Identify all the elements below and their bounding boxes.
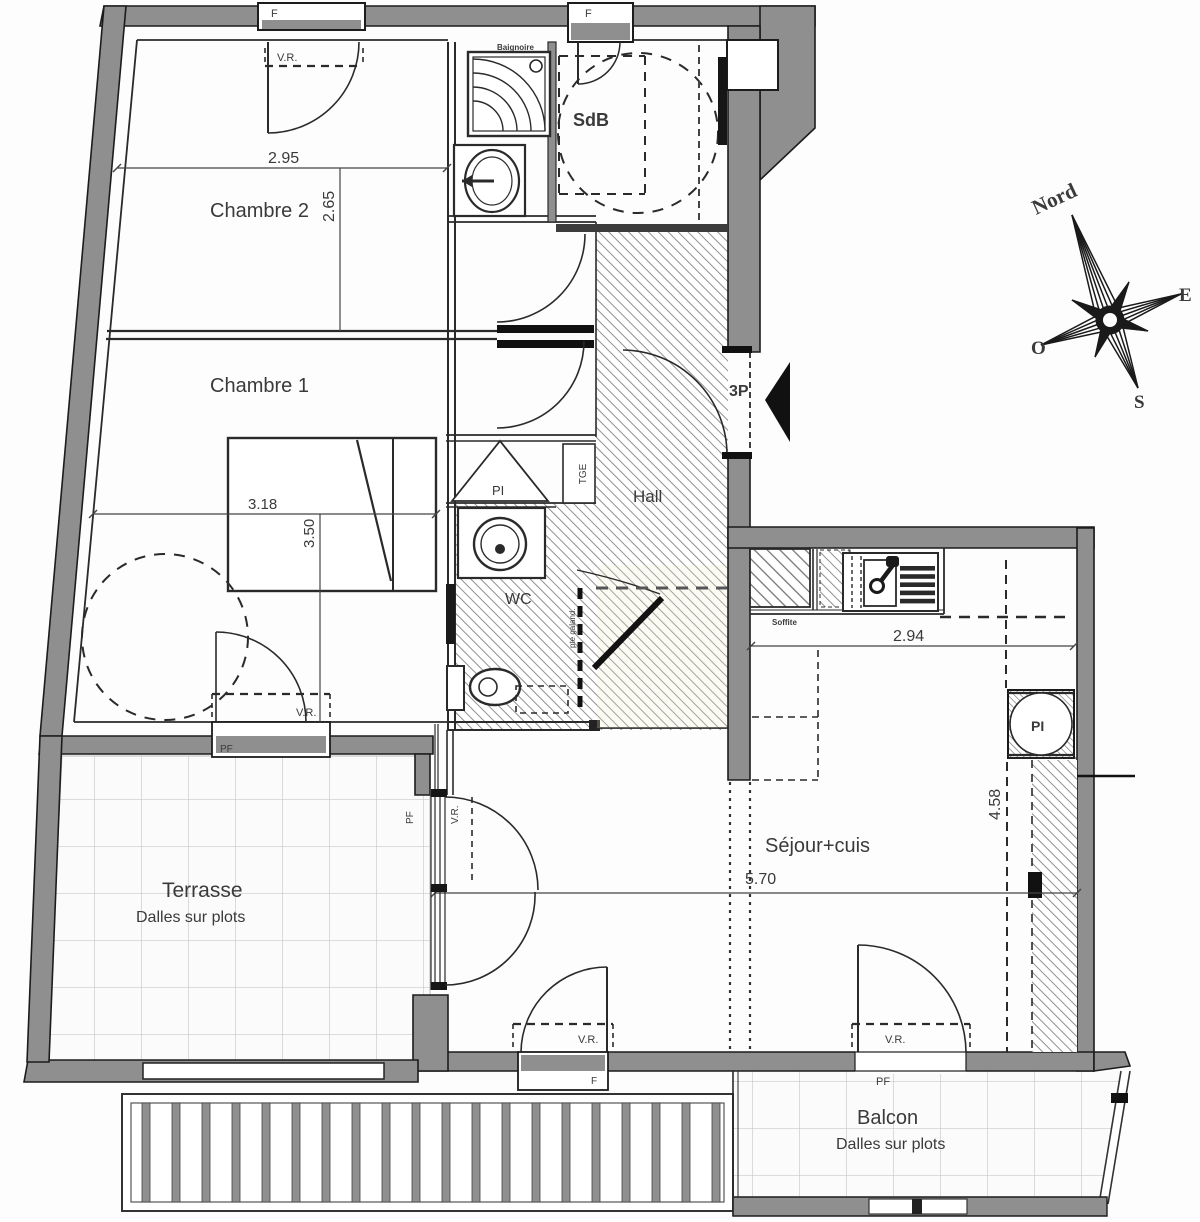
svg-text:PI: PI <box>1031 718 1044 734</box>
svg-text:Balcon: Balcon <box>857 1107 918 1129</box>
svg-text:F: F <box>271 8 278 20</box>
svg-text:3P: 3P <box>729 383 749 400</box>
svg-text:O: O <box>1031 338 1046 359</box>
svg-text:3.50: 3.50 <box>301 519 318 548</box>
svg-text:2.94: 2.94 <box>893 628 924 645</box>
svg-text:Séjour+cuis: Séjour+cuis <box>765 835 870 857</box>
svg-text:Hall: Hall <box>633 487 662 506</box>
svg-text:TGE: TGE <box>578 463 589 484</box>
svg-text:WC: WC <box>505 591 532 608</box>
svg-text:2.65: 2.65 <box>321 191 338 222</box>
svg-text:V.R.: V.R. <box>277 52 297 64</box>
svg-text:PF: PF <box>405 811 416 824</box>
svg-text:S: S <box>1134 392 1145 413</box>
svg-text:F: F <box>585 8 592 20</box>
svg-text:Baignoire: Baignoire <box>497 43 534 52</box>
svg-text:3.18: 3.18 <box>248 496 277 513</box>
svg-text:SdB: SdB <box>573 110 609 130</box>
svg-text:2.95: 2.95 <box>268 150 299 167</box>
svg-text:PI: PI <box>492 483 504 498</box>
svg-text:Dalles sur plots: Dalles sur plots <box>136 909 245 926</box>
svg-text:PF: PF <box>876 1076 890 1088</box>
svg-text:E: E <box>1179 285 1192 306</box>
svg-text:Dalles sur plots: Dalles sur plots <box>836 1136 945 1153</box>
svg-text:Soffite: Soffite <box>772 618 797 627</box>
svg-text:Chambre 2: Chambre 2 <box>210 200 309 222</box>
svg-text:pte galand.: pte galand. <box>568 608 577 648</box>
svg-text:F: F <box>591 1076 597 1087</box>
svg-text:V.R.: V.R. <box>885 1034 905 1046</box>
svg-text:Chambre 1: Chambre 1 <box>210 375 309 397</box>
svg-text:V.R.: V.R. <box>578 1034 598 1046</box>
svg-text:PF: PF <box>220 744 233 755</box>
svg-text:Terrasse: Terrasse <box>162 879 243 902</box>
svg-text:V.R.: V.R. <box>450 805 461 824</box>
svg-text:4.58: 4.58 <box>987 789 1004 820</box>
